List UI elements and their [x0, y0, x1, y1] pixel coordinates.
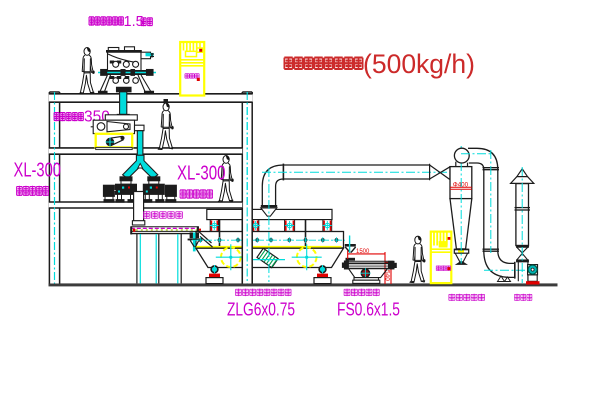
svg-text:FS0.6x1.5: FS0.6x1.5 — [337, 300, 400, 320]
svg-text:ZLG6x0.75: ZLG6x0.75 — [227, 300, 295, 320]
svg-text:XL-300: XL-300 — [14, 160, 62, 182]
svg-text:1500: 1500 — [356, 249, 370, 255]
svg-text:XL-300: XL-300 — [177, 163, 226, 185]
svg-text:(500kg/h): (500kg/h) — [363, 49, 475, 79]
